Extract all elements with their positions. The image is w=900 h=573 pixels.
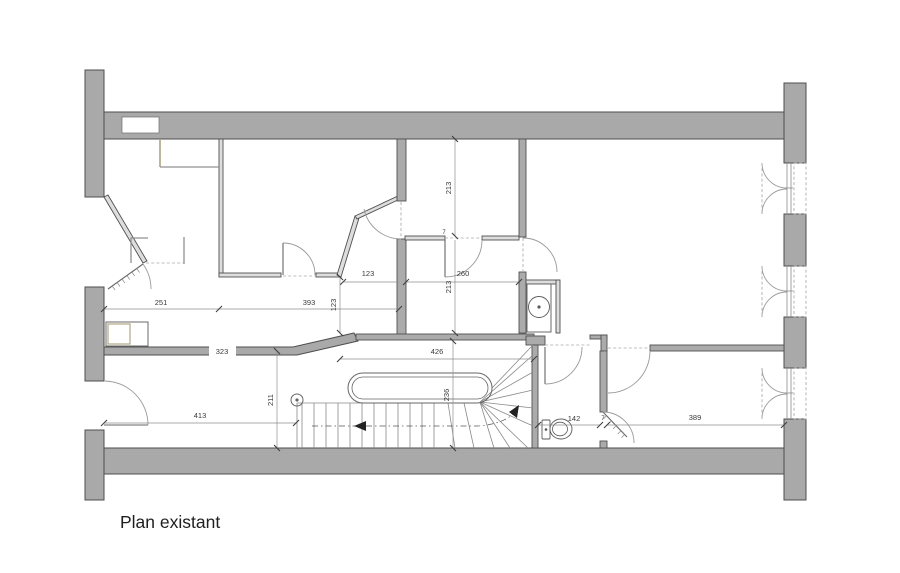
window-3 [762,368,806,419]
diagonal-wall-steep [337,216,359,277]
stair-top-wall [356,334,534,340]
top-wall-recess [122,117,159,133]
dim-7-lower: 7 [601,416,605,422]
right-wall-seg1 [784,83,806,163]
hall-cupboard [106,322,148,346]
dim-211: 211 [266,394,275,406]
lower-left-room-door [104,381,148,425]
right-wall-seg2 [784,214,806,266]
stair-handrail [348,373,492,403]
dim-260: 260 [457,269,470,278]
dim-393: 393 [303,298,316,307]
wall-b-lower [397,239,406,335]
stair-arrow-start [354,421,366,431]
doors [104,202,650,443]
wc-entry-door [545,345,590,384]
dim-251: 251 [155,298,168,307]
entrance-chamfer-wall [104,195,147,263]
dim-389: 389 [689,413,702,422]
left-wall-bottom [85,430,104,500]
wall-c-upper [519,139,526,237]
bottom-right-room-door [605,348,650,393]
staircase [291,345,533,448]
room1-right-wall [219,139,223,276]
left-wall-mid [85,287,104,381]
room2-door [283,243,316,276]
right-wall-seg3 [784,317,806,368]
basin-niche-right [556,280,560,333]
floor-plan-canvas: 251 393 123 260 123 213 213 7 323 426 [0,0,900,573]
wc-right-wall-lower [600,441,607,448]
right-room-door [523,238,557,272]
dim-213-upper: 213 [444,182,453,195]
dim-426: 426 [431,347,444,356]
dim-413: 413 [194,411,207,420]
dimensions: 251 393 123 260 123 213 213 7 323 426 [101,136,787,451]
entrance-door [108,263,184,290]
windows [762,163,806,419]
wc-right-wall-upper [600,351,607,412]
basin-niche-top [526,280,559,284]
dim-142: 142 [568,414,581,423]
plan-title: Plan existant [120,512,220,532]
dim-323: 323 [216,347,229,356]
plan-sheet: 251 393 123 260 123 213 213 7 323 426 [0,0,900,573]
wc-door [603,412,634,443]
window-1 [762,163,806,214]
left-wall-top [85,70,104,197]
bottom-wall [104,448,784,474]
dim-236: 236 [442,389,451,402]
dim-123-v: 123 [329,299,338,312]
wall-b-upper [397,139,406,201]
top-wall [104,112,785,139]
dim-7-upper: 7 [442,230,446,236]
bottom-right-room-top-wall [650,345,784,351]
dim-213-lower: 213 [444,281,453,294]
right-wall-seg4 [784,419,806,500]
dim-123-h: 123 [362,269,375,278]
diagonal-wall-shallow [355,196,400,219]
window-2 [762,266,806,317]
washbasin [527,284,551,332]
